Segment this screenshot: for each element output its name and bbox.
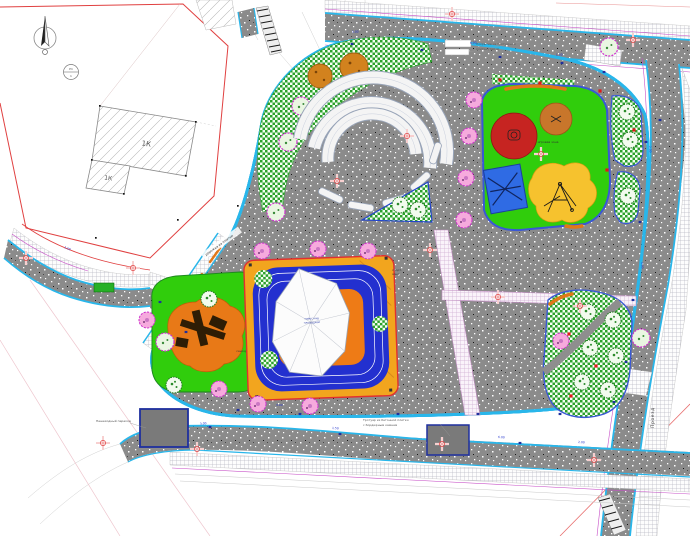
- red-marker: [567, 332, 570, 335]
- site-plan-canvas: Рп 1 1К 1К: [0, 0, 690, 536]
- benchmark-bottom-label: 1: [70, 74, 72, 78]
- red-marker: [569, 394, 572, 397]
- north-arrow-icon: [34, 16, 56, 55]
- svg-text:6.00: 6.00: [470, 41, 477, 45]
- stairs-strip-top: [256, 6, 282, 55]
- red-marker: [538, 81, 541, 84]
- red-marker: [598, 89, 601, 92]
- svg-text:1.50: 1.50: [332, 426, 339, 430]
- playground-label: игровая зона: [538, 140, 559, 144]
- building-a-label: 1К: [141, 139, 151, 148]
- tree-green: [582, 340, 598, 356]
- tree-pink: [302, 398, 318, 414]
- tree-green: [392, 197, 408, 213]
- red-marker: [594, 364, 597, 367]
- tree-green: [600, 382, 616, 398]
- svg-text:3.00: 3.00: [276, 403, 283, 407]
- playground-ne: игровая зона: [456, 74, 643, 230]
- tree-pink: [553, 333, 569, 349]
- tree-green: [166, 377, 182, 393]
- tree-pink: [254, 243, 270, 259]
- canopy-label-2: площадкой: [304, 320, 321, 325]
- svg-text:1.50: 1.50: [556, 53, 563, 57]
- tree-green: [201, 291, 217, 307]
- bottom-callout-line1: Тротуар из бетонной плитки: [362, 418, 409, 422]
- tree-green: [608, 348, 624, 364]
- benchmark-top-label: Рп: [69, 67, 73, 71]
- shrub: [600, 38, 618, 56]
- red-marker: [605, 168, 608, 171]
- tree-pink: [250, 396, 266, 412]
- sports-court: навес над площадкой: [244, 255, 399, 400]
- road-stub-top: [238, 8, 258, 38]
- carousel-pad: [491, 113, 537, 159]
- site-plan-drawing: Рп 1 1К 1К: [0, 0, 690, 536]
- top-callout-line1: Покрытие из тротуарной: [476, 42, 516, 46]
- bench-green: [94, 283, 114, 292]
- raised-crossing-left: [140, 409, 188, 447]
- hatched-patch-topleft: [196, 0, 236, 30]
- tree-pink: [310, 241, 326, 257]
- svg-text:2.00: 2.00: [648, 146, 653, 153]
- raised-crossing-right: [427, 425, 469, 455]
- sandbox: [483, 164, 527, 214]
- tree-pink: [458, 170, 474, 186]
- svg-text:зона: зона: [392, 272, 399, 276]
- play-hill: [529, 163, 597, 223]
- red-marker: [498, 78, 501, 81]
- tree-green: [410, 202, 426, 218]
- tree-pink: [139, 312, 155, 328]
- svg-text:6.00: 6.00: [498, 435, 505, 439]
- left-callout: Пешеходный переход: [96, 419, 146, 428]
- red-marker: [632, 128, 635, 131]
- tree-pink: [461, 128, 477, 144]
- tree-pink: [466, 92, 482, 108]
- safety-pad: [168, 297, 245, 372]
- svg-text:2.00: 2.00: [578, 440, 585, 444]
- tree-pink: [360, 243, 376, 259]
- benchmark-icon: Рп 1: [64, 65, 79, 80]
- shrub: [156, 333, 174, 351]
- tree-green: [622, 132, 638, 148]
- svg-text:3.00: 3.00: [352, 30, 359, 34]
- shrub: [632, 329, 650, 347]
- building-block-b: 1К: [86, 160, 130, 194]
- left-road: [4, 224, 150, 307]
- top-callout-line2: плитки (тип 1): [476, 47, 499, 51]
- tree-green: [605, 312, 621, 328]
- bed-southeast: [544, 290, 633, 417]
- tree-green: [620, 188, 636, 204]
- tree-pink: [211, 381, 227, 397]
- tree-green: [574, 374, 590, 390]
- tree-green: [619, 104, 635, 120]
- bottom-callout-line2: с бордюрным камнем: [363, 423, 397, 427]
- shrub: [267, 203, 285, 221]
- svg-text:1.50: 1.50: [64, 245, 72, 251]
- svg-text:Пешеходный переход: Пешеходный переход: [96, 419, 131, 423]
- svg-text:4.00: 4.00: [640, 262, 645, 269]
- tree-pink: [456, 212, 472, 228]
- road-vertical-label: Проезд: [650, 407, 656, 428]
